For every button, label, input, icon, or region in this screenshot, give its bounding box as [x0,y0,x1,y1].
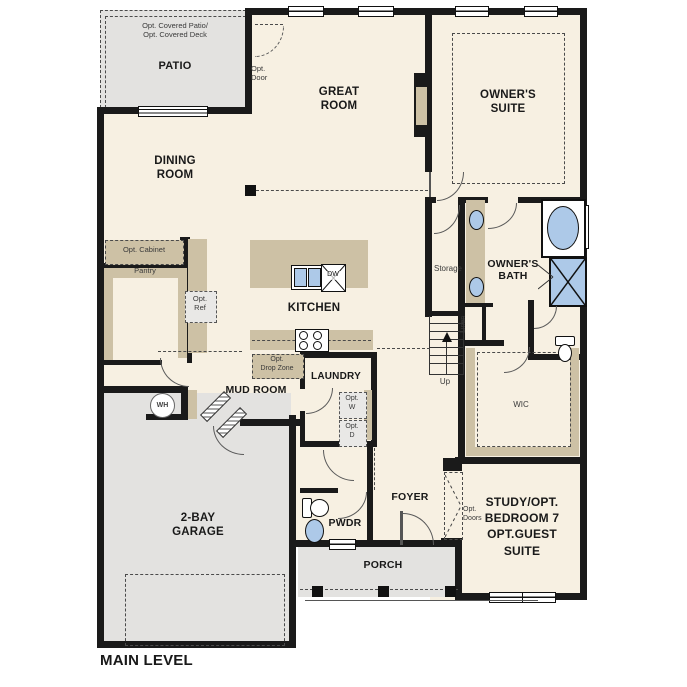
pwdr-sink-icon [305,519,324,543]
plan-title: MAIN LEVEL [100,652,300,670]
wall [367,445,373,542]
sliding-door [138,106,208,117]
foyer-label: FOYER [380,491,440,503]
porch-step-line [305,600,538,601]
patio-dash-top-inner [105,16,246,17]
opt-cabinet-label: Opt. Cabinet [108,245,180,254]
patio-dash-top [100,10,246,11]
window [522,592,556,603]
opt-dryer-label: Opt. D [340,423,364,441]
window [358,6,394,17]
great-room-label: GREAT ROOM [299,86,379,113]
up-arrow-icon [442,332,452,342]
opt-doors-opening [444,472,463,540]
opening-dash [377,348,430,349]
garage-label: 2-BAY GARAGE [155,512,241,539]
garage-door-dash [125,574,285,646]
fireplace-hearth [416,87,427,125]
wall [240,419,300,426]
column [245,185,256,196]
patio-dash-left [100,10,101,108]
porch-post [378,586,389,597]
burner [299,331,308,340]
wall [97,107,104,648]
opening-dash [374,448,375,490]
wall [300,352,377,358]
toilet-bowl [558,344,572,362]
window [329,539,356,550]
wic-shelf [466,348,475,448]
stair-rail [446,340,447,374]
stairs [429,316,464,375]
study-label: STUDY/OPT. BEDROOM 7 OPT.GUEST SUITE [464,494,580,559]
wall [455,538,462,600]
wall [455,457,587,464]
kitchen-cabinet [188,322,207,353]
burner [313,341,322,350]
wall [289,415,296,648]
window [489,592,523,603]
kitchen-cabinet [188,239,207,291]
ceiling-break-dash [256,190,428,191]
wall [443,458,462,471]
sink-basin [308,268,321,287]
front-door-leaf [400,511,403,545]
door-leaf [429,172,431,200]
toilet-bowl [310,499,329,517]
wall [425,197,436,203]
owners-suite-label: OWNER'S SUITE [468,89,548,116]
opt-door-label: Opt. Door [251,64,281,83]
porch-post [445,586,456,597]
burner [313,331,322,340]
patio-dash-left-inner [105,16,106,108]
window [524,6,558,17]
porch-post [312,586,323,597]
porch-label: PORCH [354,559,412,571]
owners-bath-label: OWNER'S BATH [482,258,544,283]
patio-note: Opt. Covered Patio/ Opt. Covered Deck [110,21,240,40]
burner [299,341,308,350]
sink-basin [294,268,307,287]
floor-plan: DW WH [0,0,687,687]
wic-shelf [570,348,579,448]
shower-icon [549,257,587,307]
opt-washer-label: Opt. W [340,395,364,413]
window [288,6,324,17]
wall [102,360,162,365]
laundry-label: LAUNDRY [304,371,368,383]
linen-label: Linen [460,304,472,344]
opt-ref-label: Opt. Ref [186,294,214,313]
dining-room-label: DINING ROOM [135,155,215,182]
storage-label: Storage [430,264,466,274]
kitchen-label: KITCHEN [274,302,354,316]
wall [300,488,338,493]
pwdr-label: PWDR [323,517,367,529]
wic-shelf [466,447,579,456]
window [455,6,489,17]
water-heater-label: WH [157,402,169,409]
up-label: Up [432,377,458,387]
wic-label: WIC [501,400,541,410]
mud-room-label: MUD ROOM [213,384,299,396]
opening-dash [158,351,242,352]
wall [245,8,252,114]
water-heater-icon: WH [150,393,175,418]
wall [425,200,432,317]
opt-drop-zone-label: Opt. Drop Zone [253,356,301,374]
opt-door-leaf [255,24,283,25]
mud-bench [188,390,197,419]
pantry-shelf [104,268,113,360]
dishwasher-label: DW [322,271,344,280]
wall [100,386,188,393]
pantry-label: Pantry [120,266,170,275]
patio-label: PATIO [130,60,220,73]
bathtub-basin [547,206,579,250]
vanity-sink-icon [469,210,484,230]
